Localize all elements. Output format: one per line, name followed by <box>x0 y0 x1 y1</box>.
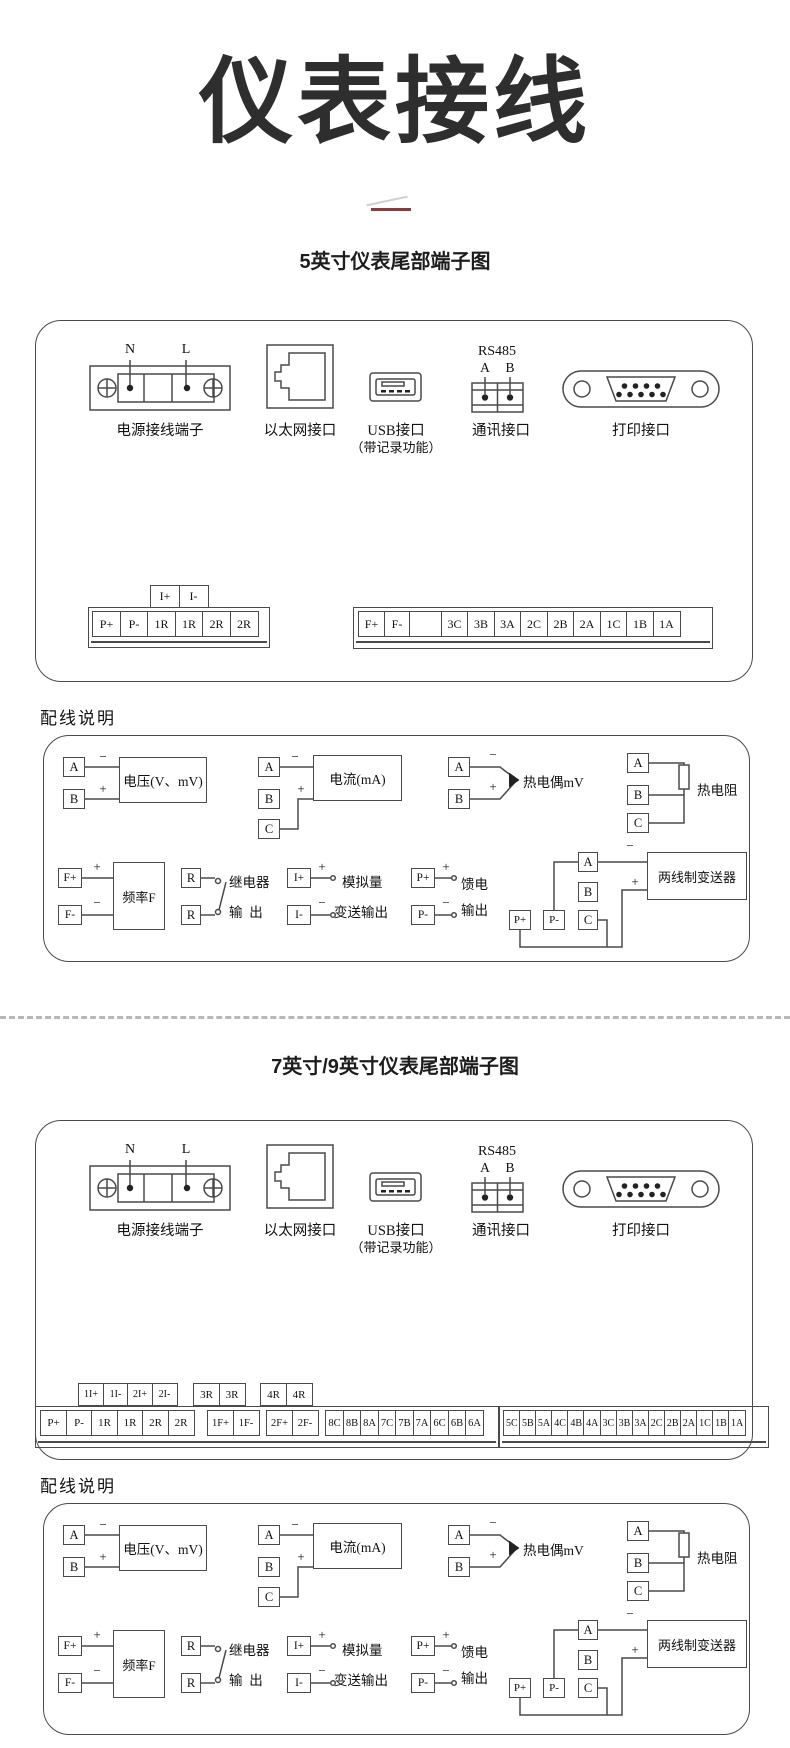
rtd-label: 热电阻 <box>697 779 738 799</box>
current-terminal-b: B <box>258 789 280 809</box>
feed-label-line2: 输出 <box>461 899 488 919</box>
section79-wiring-diagrams: A B − + 电压(V、mV) A B C − + 电流(mA) A B − … <box>43 1503 750 1735</box>
terminal-cell: 4R <box>286 1383 313 1406</box>
frequency-box: 频率F <box>113 1630 165 1698</box>
transmitter-plus-sign: + <box>627 1642 643 1658</box>
power-l-label: L <box>179 342 193 358</box>
section5-wiring-diagrams: A B − + 电压(V、mV) A B C − + 电流(mA) A B − … <box>43 735 750 967</box>
feed-plus-sign: + <box>438 1627 454 1643</box>
ports-row: N L RS485 A B 电源接线端子 以太网接口 USB接口 通讯接口 打印… <box>35 320 753 480</box>
terminal-cell: 8A <box>360 1410 379 1436</box>
thermocouple-label: 热电偶mV <box>523 771 584 791</box>
current-terminal-a: A <box>258 1525 280 1545</box>
analog-minus-sign: − <box>314 895 330 911</box>
port-label-power: 电源接线端子 <box>100 419 220 440</box>
feed-label-line2: 输出 <box>461 1667 488 1687</box>
terminal-strip-1f: 1F+1F- <box>207 1410 260 1436</box>
feed-label-line1: 馈电 <box>461 1641 488 1661</box>
terminal-strip-79-power: P+P-1R1R2R2R <box>40 1410 195 1436</box>
rs485-a-label: A <box>478 1160 492 1176</box>
current-terminal-c: C <box>258 1587 280 1607</box>
terminal-cell: 2B <box>547 611 575 637</box>
voltage-terminal-b: B <box>63 1557 85 1577</box>
rs485-b-label: B <box>503 360 517 376</box>
terminal-strip-4r: 4R4R <box>260 1383 313 1406</box>
analog-terminal-iminus: I- <box>287 1673 311 1693</box>
analog-terminal-iplus: I+ <box>287 868 311 888</box>
rail-line <box>502 1441 766 1443</box>
transmitter-terminal-a: A <box>578 1620 598 1640</box>
terminal-cell: 3C <box>600 1410 618 1436</box>
current-plus-sign: + <box>293 1549 309 1565</box>
section79-ports: N L RS485 A B 电源接线端子 以太网接口 USB接口 通讯接口 打印… <box>35 1120 753 1280</box>
voltage-plus-sign: + <box>95 1549 111 1565</box>
terminal-cell: 2A <box>680 1410 698 1436</box>
terminal-cell <box>409 611 442 637</box>
terminal-strip-8to6: 8C8B8A7C7B7A6C6B6A <box>325 1410 484 1436</box>
terminal-cell: 1B <box>626 611 654 637</box>
transmitter-box: 两线制变送器 <box>647 852 747 900</box>
rtd-terminal-c: C <box>627 813 649 833</box>
rs485-label: RS485 <box>467 344 527 360</box>
terminal-cell: 1R <box>117 1410 144 1436</box>
terminal-cell: 4B <box>567 1410 585 1436</box>
thermocouple-terminal-b: B <box>448 1557 470 1577</box>
wiring-note-label-5: 配线说明 <box>40 704 116 729</box>
port-label-printer: 打印接口 <box>581 419 701 440</box>
transmitter-plus-sign: + <box>627 874 643 890</box>
analog-terminal-iplus: I+ <box>287 1636 311 1656</box>
transmitter-terminal-c: C <box>578 1678 598 1698</box>
relay-label-line2: 输 出 <box>229 901 263 921</box>
voltage-terminal-a: A <box>63 757 85 777</box>
terminal-cell: 2C <box>648 1410 666 1436</box>
divider-slash <box>366 196 407 207</box>
rtd-terminal-b: B <box>627 785 649 805</box>
terminal-cell: 4C <box>551 1410 569 1436</box>
section79-title: 7英寸/9英寸仪表尾部端子图 <box>0 1050 790 1079</box>
rtd-terminal-c: C <box>627 1581 649 1601</box>
current-box: 电流(mA) <box>313 755 402 801</box>
terminal-cell: I+ <box>150 585 180 608</box>
rail-line <box>38 1441 496 1443</box>
terminal-cell: 3A <box>632 1410 650 1436</box>
current-box: 电流(mA) <box>313 1523 402 1569</box>
terminal-cell: 2F- <box>292 1410 319 1436</box>
analog-plus-sign: + <box>314 859 330 875</box>
page: 仪表接线 5英寸仪表尾部端子图 <box>0 0 790 1748</box>
main-title: 仪表接线 <box>0 26 790 162</box>
feed-terminal-pplus: P+ <box>411 1636 435 1656</box>
frequency-terminal-fplus: F+ <box>58 868 82 888</box>
transmitter-terminal-pminus: P- <box>543 910 565 930</box>
port-label-power: 电源接线端子 <box>100 1219 220 1240</box>
terminal-strip-3r: 3R3R <box>193 1383 246 1406</box>
ports-graphics <box>35 320 753 480</box>
ports-graphics <box>35 1120 753 1280</box>
dashed-divider <box>0 1016 790 1019</box>
port-label-comm: 通讯接口 <box>451 1219 551 1240</box>
current-minus-sign: − <box>287 749 303 765</box>
thermocouple-terminal-a: A <box>448 1525 470 1545</box>
port-label-comm: 通讯接口 <box>451 419 551 440</box>
terminal-cell: 1R <box>147 611 176 637</box>
terminal-cell: 4R <box>260 1383 287 1406</box>
feed-plus-sign: + <box>438 859 454 875</box>
terminal-cell: 5C <box>503 1410 521 1436</box>
analog-terminal-iminus: I- <box>287 905 311 925</box>
terminal-strip-5to1: 5C5B5A4C4B4A3C3B3A2C2B2A1C1B1A <box>503 1410 746 1436</box>
voltage-minus-sign: − <box>95 749 111 765</box>
feed-terminal-pplus: P+ <box>411 868 435 888</box>
terminal-cell: P+ <box>92 611 121 637</box>
relay-terminal-r1: R <box>181 868 201 888</box>
port-sublabel-usb: （带记录功能） <box>326 437 466 456</box>
wiring-diagrams: A B − + 电压(V、mV) A B C − + 电流(mA) A B − … <box>43 1503 750 1735</box>
current-terminal-b: B <box>258 1557 280 1577</box>
terminal-cell: 8B <box>343 1410 362 1436</box>
frequency-minus-sign: − <box>89 1663 105 1679</box>
port-sublabel-usb: （带记录功能） <box>326 1237 466 1256</box>
terminal-cell: 1I- <box>103 1383 129 1406</box>
terminal-cell: 3R <box>219 1383 246 1406</box>
voltage-terminal-a: A <box>63 1525 85 1545</box>
section5-title: 5英寸仪表尾部端子图 <box>0 245 790 274</box>
rtd-terminal-a: A <box>627 753 649 773</box>
frequency-plus-sign: + <box>89 1627 105 1643</box>
terminal-cell: 2R <box>142 1410 169 1436</box>
transmitter-box: 两线制变送器 <box>647 1620 747 1668</box>
ports-row: N L RS485 A B 电源接线端子 以太网接口 USB接口 通讯接口 打印… <box>35 1120 753 1280</box>
wiring-diagrams: A B − + 电压(V、mV) A B C − + 电流(mA) A B − … <box>43 735 750 967</box>
relay-terminal-r2: R <box>181 1673 201 1693</box>
terminal-cell: F+ <box>358 611 385 637</box>
rail-line <box>91 641 267 643</box>
wiring-note-label-79: 配线说明 <box>40 1472 116 1497</box>
terminal-cell: F- <box>384 611 411 637</box>
transmitter-minus-sign: − <box>622 1606 638 1622</box>
terminal-cell: 1R <box>175 611 204 637</box>
rs485-a-label: A <box>478 360 492 376</box>
current-plus-sign: + <box>293 781 309 797</box>
thermocouple-minus-sign: − <box>485 1515 501 1531</box>
terminal-cell: 7B <box>395 1410 414 1436</box>
thermocouple-terminal-b: B <box>448 789 470 809</box>
terminal-cell: 6C <box>430 1410 449 1436</box>
frequency-terminal-fminus: F- <box>58 1673 82 1693</box>
terminal-cell: 7A <box>413 1410 432 1436</box>
power-n-label: N <box>123 1142 137 1158</box>
thermocouple-plus-sign: + <box>485 1547 501 1563</box>
terminal-cell: 8C <box>325 1410 344 1436</box>
frequency-box: 频率F <box>113 862 165 930</box>
thermocouple-minus-sign: − <box>485 747 501 763</box>
rail-line <box>356 641 710 643</box>
feed-minus-sign: − <box>438 1663 454 1679</box>
transmitter-terminal-b: B <box>578 882 598 902</box>
terminal-cell: 2A <box>573 611 601 637</box>
current-minus-sign: − <box>287 1517 303 1533</box>
terminal-cell: 3B <box>616 1410 634 1436</box>
frequency-minus-sign: − <box>89 895 105 911</box>
transmitter-terminal-pminus: P- <box>543 1678 565 1698</box>
terminal-cell: I- <box>179 585 209 608</box>
terminal-cell: P+ <box>40 1410 67 1436</box>
terminal-cell: P- <box>120 611 149 637</box>
terminal-strip-2f: 2F+2F- <box>266 1410 319 1436</box>
terminal-cell: 6A <box>465 1410 484 1436</box>
terminal-cell: 1F- <box>233 1410 260 1436</box>
power-n-label: N <box>123 342 137 358</box>
terminal-cell: 1I+ <box>78 1383 104 1406</box>
relay-terminal-r2: R <box>181 905 201 925</box>
transmitter-minus-sign: − <box>622 838 638 854</box>
analog-label-line1: 模拟量 <box>342 871 383 891</box>
divider-accent-bar <box>371 208 411 211</box>
terminal-cell: 1A <box>653 611 681 637</box>
relay-label-line1: 继电器 <box>229 1639 270 1659</box>
transmitter-terminal-c: C <box>578 910 598 930</box>
rtd-label: 热电阻 <box>697 1547 738 1567</box>
terminal-cell: 1F+ <box>207 1410 234 1436</box>
terminal-cell: 7C <box>378 1410 397 1436</box>
terminal-cell: P- <box>66 1410 93 1436</box>
analog-plus-sign: + <box>314 1627 330 1643</box>
rs485-b-label: B <box>503 1160 517 1176</box>
terminal-strip-i: I+I- <box>150 585 209 608</box>
frequency-plus-sign: + <box>89 859 105 875</box>
power-l-label: L <box>179 1142 193 1158</box>
terminal-cell: 4A <box>583 1410 601 1436</box>
terminal-cell: 1B <box>712 1410 730 1436</box>
terminal-cell: 3A <box>494 611 522 637</box>
terminal-cell: 6B <box>448 1410 467 1436</box>
terminal-strip-signal: F+F-3C3B3A2C2B2A1C1B1A <box>358 611 681 637</box>
terminal-cell: 3R <box>193 1383 220 1406</box>
terminal-strip-1i2i: 1I+1I-2I+2I- <box>78 1383 178 1406</box>
terminal-cell: 2R <box>168 1410 195 1436</box>
thermocouple-label: 热电偶mV <box>523 1539 584 1559</box>
voltage-plus-sign: + <box>95 781 111 797</box>
terminal-cell: 2C <box>520 611 548 637</box>
terminal-cell: 1A <box>728 1410 746 1436</box>
analog-label-line2: 变送输出 <box>334 1669 388 1689</box>
terminal-cell: 2R <box>202 611 231 637</box>
thermocouple-plus-sign: + <box>485 779 501 795</box>
voltage-box: 电压(V、mV) <box>119 1525 207 1571</box>
voltage-box: 电压(V、mV) <box>119 757 207 803</box>
terminal-cell: 1R <box>91 1410 118 1436</box>
terminal-cell: 2B <box>664 1410 682 1436</box>
terminal-cell: 2I+ <box>127 1383 153 1406</box>
terminal-cell: 5B <box>519 1410 537 1436</box>
feed-label-line1: 馈电 <box>461 873 488 893</box>
feed-minus-sign: − <box>438 895 454 911</box>
frequency-terminal-fminus: F- <box>58 905 82 925</box>
terminal-cell: 1C <box>696 1410 714 1436</box>
voltage-minus-sign: − <box>95 1517 111 1533</box>
relay-label-line1: 继电器 <box>229 871 270 891</box>
current-terminal-c: C <box>258 819 280 839</box>
voltage-terminal-b: B <box>63 789 85 809</box>
rtd-terminal-b: B <box>627 1553 649 1573</box>
analog-label-line1: 模拟量 <box>342 1639 383 1659</box>
frequency-terminal-fplus: F+ <box>58 1636 82 1656</box>
relay-label-line2: 输 出 <box>229 1669 263 1689</box>
current-terminal-a: A <box>258 757 280 777</box>
transmitter-terminal-pplus: P+ <box>509 910 531 930</box>
terminal-cell: 3C <box>441 611 469 637</box>
transmitter-terminal-b: B <box>578 1650 598 1670</box>
section5-ports: N L RS485 A B 电源接线端子 以太网接口 USB接口 通讯接口 打印… <box>35 320 753 480</box>
transmitter-terminal-pplus: P+ <box>509 1678 531 1698</box>
terminal-cell: 1C <box>600 611 628 637</box>
terminal-cell: 2R <box>230 611 259 637</box>
terminal-cell: 2F+ <box>266 1410 293 1436</box>
feed-terminal-pminus: P- <box>411 1673 435 1693</box>
analog-minus-sign: − <box>314 1663 330 1679</box>
terminal-cell: 2I- <box>152 1383 178 1406</box>
port-label-printer: 打印接口 <box>581 1219 701 1240</box>
rs485-label: RS485 <box>467 1144 527 1160</box>
analog-label-line2: 变送输出 <box>334 901 388 921</box>
terminal-strip-power: P+P-1R1R2R2R <box>92 611 259 637</box>
terminal-cell: 3B <box>467 611 495 637</box>
relay-terminal-r1: R <box>181 1636 201 1656</box>
rtd-terminal-a: A <box>627 1521 649 1541</box>
transmitter-terminal-a: A <box>578 852 598 872</box>
feed-terminal-pminus: P- <box>411 905 435 925</box>
terminal-cell: 5A <box>535 1410 553 1436</box>
thermocouple-terminal-a: A <box>448 757 470 777</box>
